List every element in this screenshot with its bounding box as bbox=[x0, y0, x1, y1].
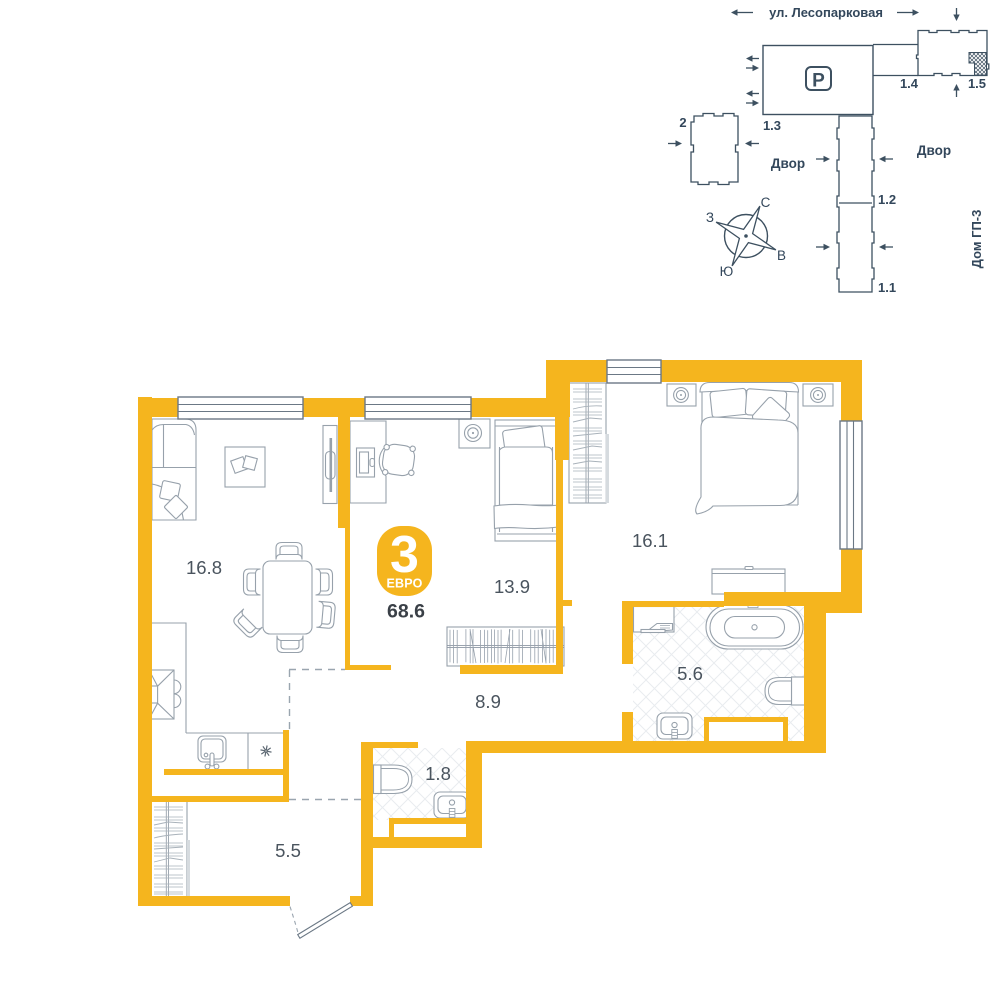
svg-text:1.1: 1.1 bbox=[878, 280, 896, 295]
svg-text:16.1: 16.1 bbox=[632, 530, 668, 551]
svg-text:16.8: 16.8 bbox=[186, 557, 222, 578]
svg-text:ул. Лесопарковая: ул. Лесопарковая bbox=[769, 5, 883, 20]
svg-text:1.8: 1.8 bbox=[425, 763, 451, 784]
svg-text:В: В bbox=[777, 248, 786, 263]
svg-text:3: 3 bbox=[390, 526, 419, 584]
svg-text:68.6: 68.6 bbox=[387, 601, 425, 623]
svg-text:2: 2 bbox=[679, 115, 686, 130]
svg-text:Дом ГП-3: Дом ГП-3 bbox=[969, 210, 984, 269]
svg-text:5.5: 5.5 bbox=[275, 840, 301, 861]
svg-text:Ю: Ю bbox=[720, 264, 734, 279]
svg-text:Двор: Двор bbox=[771, 156, 805, 171]
svg-text:ЕВРО: ЕВРО bbox=[386, 577, 422, 591]
svg-text:Двор: Двор bbox=[917, 143, 951, 158]
svg-text:С: С bbox=[761, 195, 771, 210]
svg-text:1.4: 1.4 bbox=[900, 76, 919, 91]
svg-text:1.2: 1.2 bbox=[878, 192, 896, 207]
svg-text:1.3: 1.3 bbox=[763, 118, 781, 133]
svg-text:1.5: 1.5 bbox=[968, 76, 986, 91]
svg-text:5.6: 5.6 bbox=[677, 663, 703, 684]
svg-text:8.9: 8.9 bbox=[475, 691, 501, 712]
svg-text:13.9: 13.9 bbox=[494, 576, 530, 597]
svg-text:З: З bbox=[706, 210, 714, 225]
svg-text:P: P bbox=[812, 71, 825, 92]
